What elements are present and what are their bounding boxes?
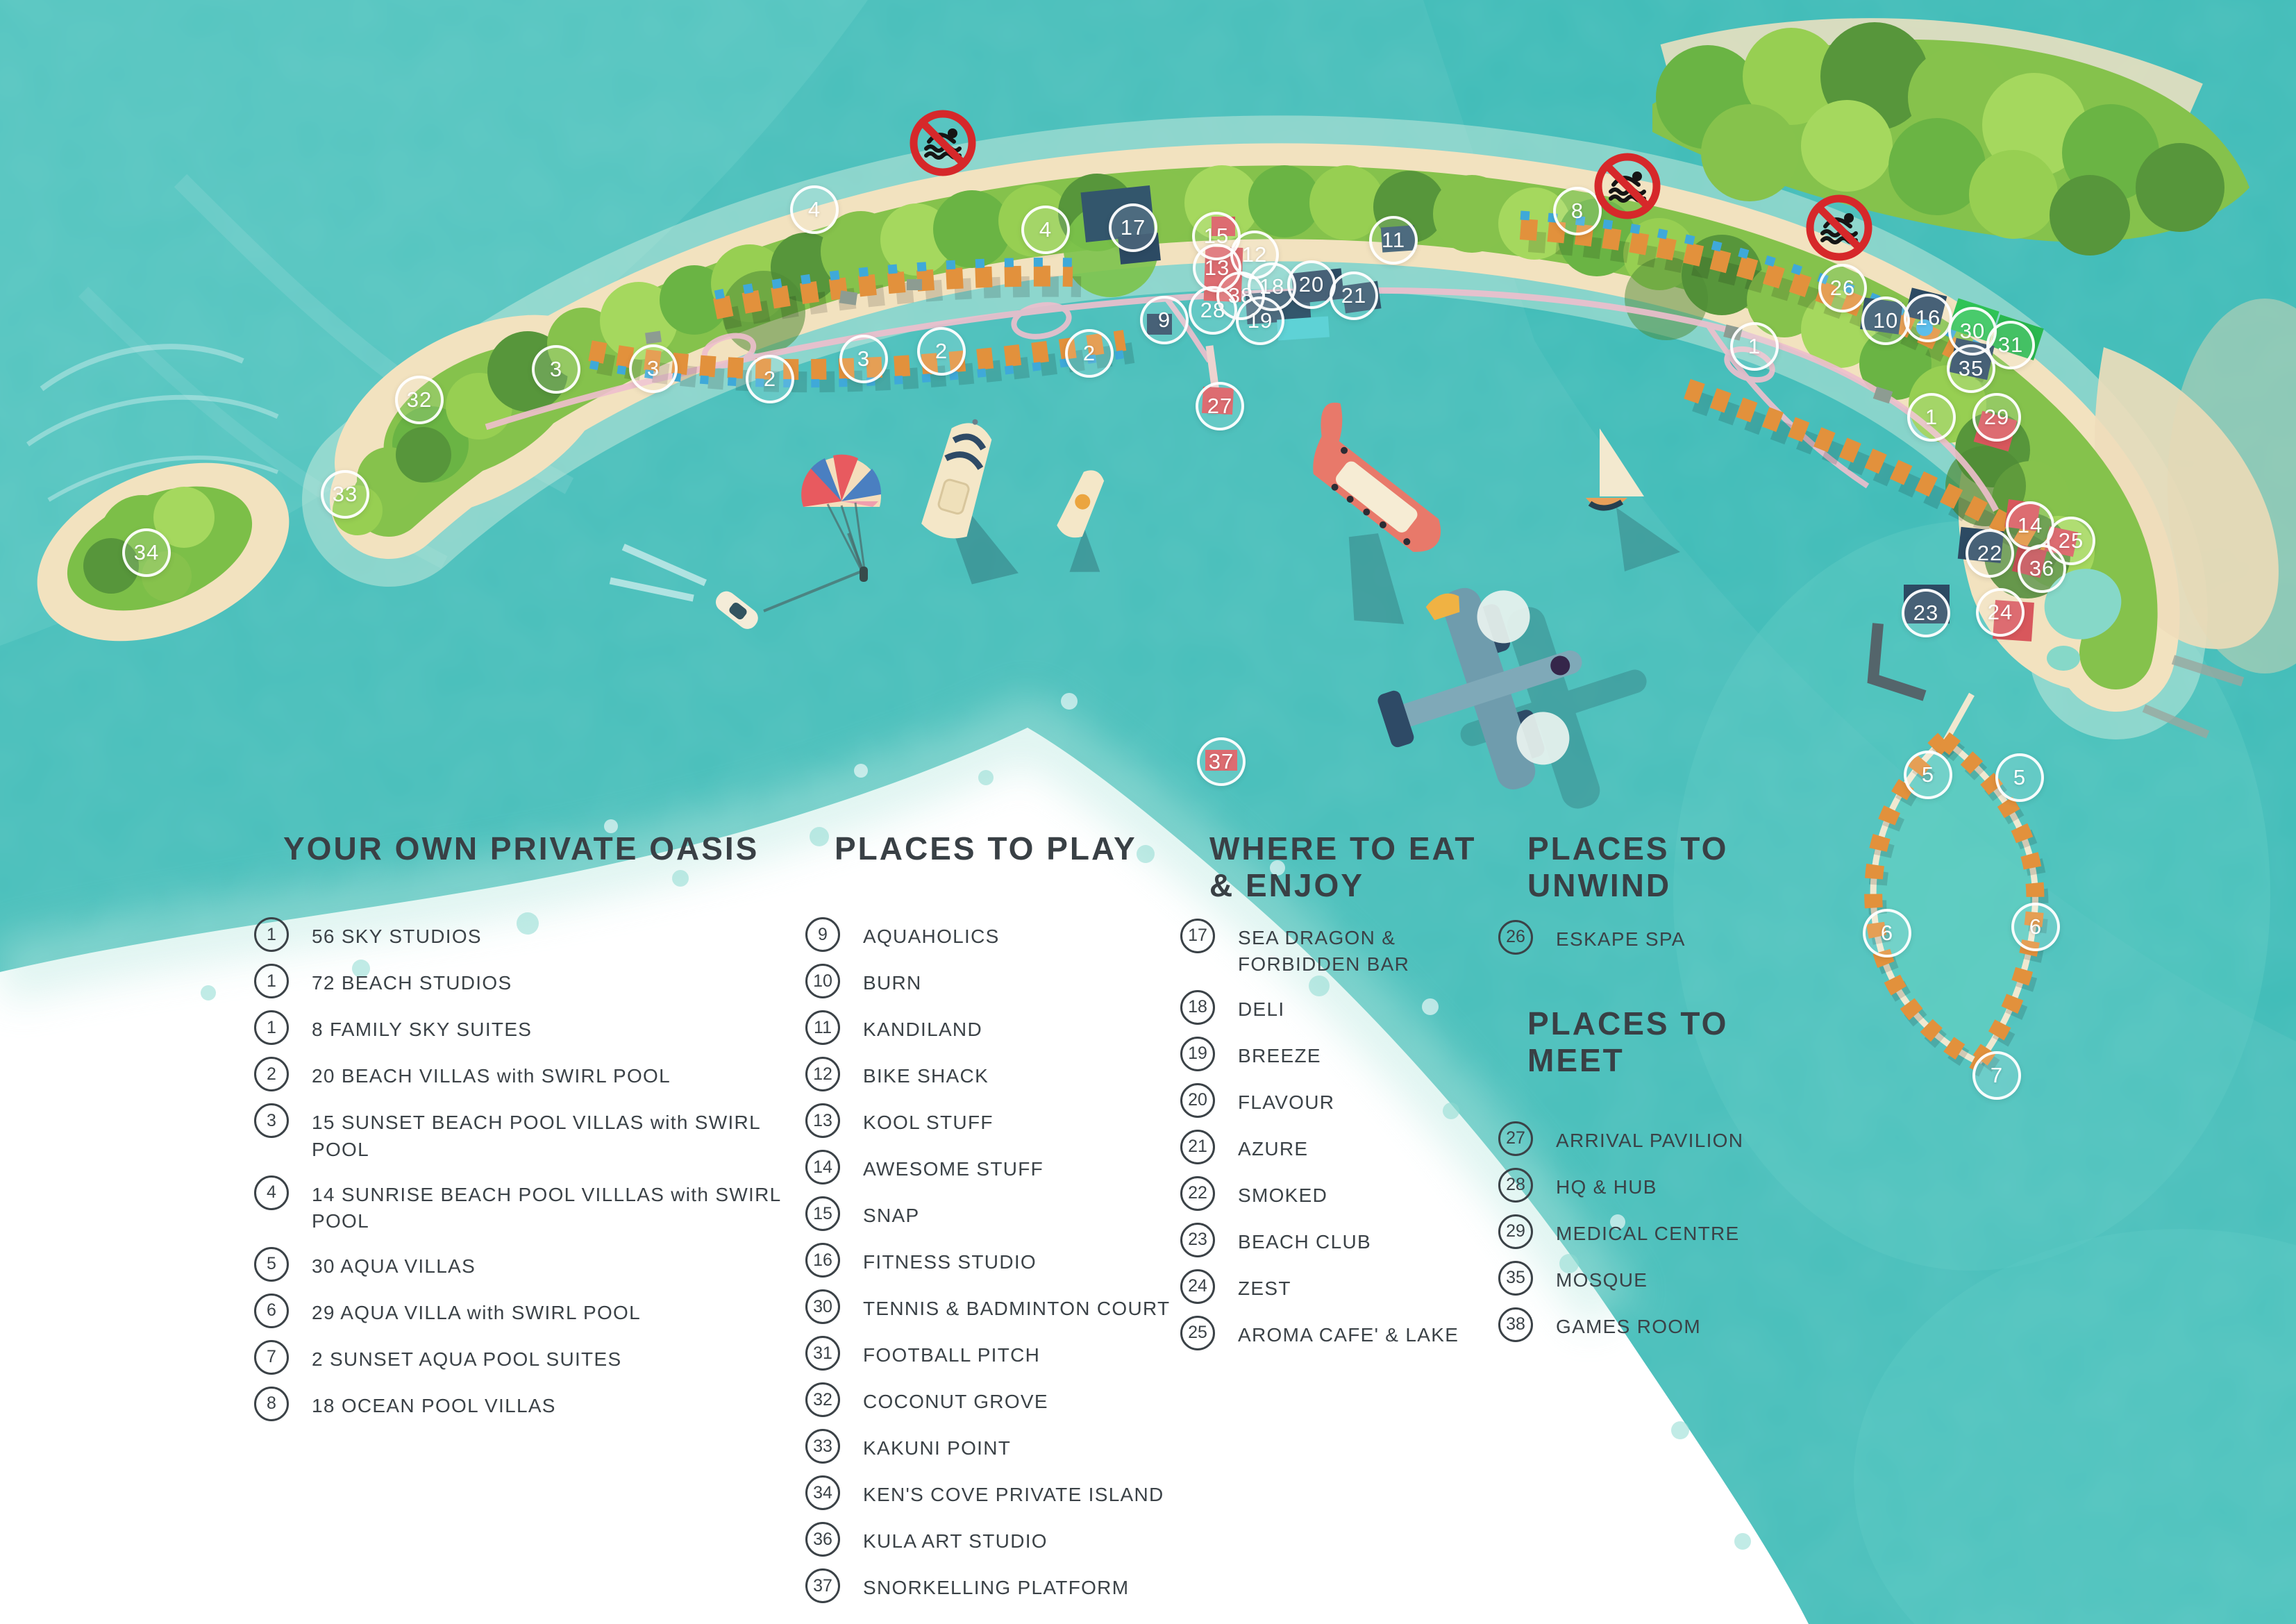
map-marker-2: 2 (917, 327, 966, 376)
legend-item-number: 37 (805, 1568, 840, 1603)
legend-item-label: SNORKELLING PLATFORM (863, 1568, 1129, 1602)
legend-item-label: KAKUNI POINT (863, 1429, 1011, 1462)
legend-item-number: 33 (805, 1429, 840, 1464)
legend-item: 12 BIKE SHACK (805, 1057, 1194, 1091)
legend-item-label: KOOL STUFF (863, 1103, 994, 1137)
legend-items: 1 56 SKY STUDIOS 1 72 BEACH STUDIOS 1 8 … (254, 917, 796, 1421)
map-marker-10: 10 (1861, 296, 1910, 345)
legend-item-number: 30 (805, 1289, 840, 1324)
map-marker-17: 17 (1109, 203, 1157, 252)
legend-item-number: 14 (805, 1150, 840, 1184)
legend-section-places-to-play: PLACES TO PLAY 9 AQUAHOLICS 10 BURN 11 K… (805, 830, 1194, 1615)
legend-item-number: 21 (1180, 1130, 1215, 1164)
legend-item-label: 20 BEACH VILLAS with SWIRL POOL (312, 1057, 671, 1090)
map-marker-37: 37 (1197, 737, 1246, 786)
legend-item-number: 17 (1180, 919, 1215, 953)
legend-item: 24 ZEST (1180, 1269, 1507, 1304)
legend-item-number: 36 (805, 1522, 840, 1557)
legend-items: 26 ESKAPE SPA (1498, 920, 1818, 955)
legend-item-number: 23 (1180, 1223, 1215, 1257)
legend-item: 5 30 AQUA VILLAS (254, 1247, 796, 1282)
legend-item-label: FLAVOUR (1238, 1083, 1334, 1116)
legend-item-label: KULA ART STUDIO (863, 1522, 1048, 1555)
map-marker-20: 20 (1287, 260, 1336, 309)
legend-item-label: COCONUT GROVE (863, 1382, 1048, 1416)
legend-title: PLACES TO UNWIND (1527, 830, 1818, 905)
legend-item: 16 FITNESS STUDIO (805, 1243, 1194, 1278)
legend-item-number: 24 (1180, 1269, 1215, 1304)
legend-item: 4 14 SUNRISE BEACH POOL VILLLAS with SWI… (254, 1175, 796, 1235)
legend-item-number: 6 (254, 1294, 289, 1328)
legend-item: 17 SEA DRAGON & FORBIDDEN BAR (1180, 919, 1507, 978)
legend-item: 33 KAKUNI POINT (805, 1429, 1194, 1464)
legend-item-label: AZURE (1238, 1130, 1308, 1163)
legend-item: 6 29 AQUA VILLA with SWIRL POOL (254, 1294, 796, 1328)
legend-item: 1 8 FAMILY SKY SUITES (254, 1010, 796, 1045)
legend-item: 9 AQUAHOLICS (805, 917, 1194, 952)
legend-item-label: ESKAPE SPA (1556, 920, 1686, 953)
no-swimming-icon (907, 107, 979, 179)
legend-item-label: ARRIVAL PAVILION (1556, 1121, 1743, 1155)
map-marker-27: 27 (1196, 382, 1244, 430)
legend-item: 11 KANDILAND (805, 1010, 1194, 1045)
map-marker-3: 3 (839, 335, 888, 383)
legend-item-label: SNAP (863, 1196, 919, 1230)
map-marker-2: 2 (746, 355, 794, 403)
legend-item-label: BEACH CLUB (1238, 1223, 1371, 1256)
legend-item-label: 14 SUNRISE BEACH POOL VILLLAS with SWIRL… (312, 1175, 796, 1235)
legend-item-number: 20 (1180, 1083, 1215, 1118)
legend-item: 29 MEDICAL CENTRE (1498, 1214, 1818, 1249)
legend-item-number: 1 (254, 964, 289, 998)
map-marker-2: 2 (1065, 329, 1114, 378)
legend-item-label: DELI (1238, 990, 1284, 1023)
map-marker-7: 7 (1972, 1051, 2021, 1100)
map-marker-28: 28 (1189, 286, 1237, 335)
legend-item-label: MOSQUE (1556, 1261, 1648, 1294)
legend-item: 28 HQ & HUB (1498, 1168, 1818, 1203)
legend-item: 35 MOSQUE (1498, 1261, 1818, 1296)
legend-item-number: 29 (1498, 1214, 1533, 1249)
map-marker-22: 22 (1966, 529, 2014, 578)
legend-item-number: 25 (1180, 1316, 1215, 1350)
legend-item-label: 8 FAMILY SKY SUITES (312, 1010, 532, 1044)
legend-title: WHERE TO EAT & ENJOY (1209, 830, 1507, 905)
legend-item: 30 TENNIS & BADMINTON COURT (805, 1289, 1194, 1324)
legend-item-number: 2 (254, 1057, 289, 1091)
legend-item-number: 15 (805, 1196, 840, 1231)
map-marker-6: 6 (2011, 903, 2060, 951)
legend-item-number: 22 (1180, 1176, 1215, 1211)
map-marker-4: 4 (1021, 206, 1070, 254)
legend-item-number: 28 (1498, 1168, 1533, 1203)
map-marker-35: 35 (1947, 344, 1995, 393)
legend-section-private-oasis: YOUR OWN PRIVATE OASIS 1 56 SKY STUDIOS … (254, 830, 796, 1433)
legend-item-label: SEA DRAGON & FORBIDDEN BAR (1238, 919, 1409, 978)
legend-item-label: HQ & HUB (1556, 1168, 1657, 1201)
legend-item-number: 10 (805, 964, 840, 998)
legend-section-where-to-eat: WHERE TO EAT & ENJOY 17 SEA DRAGON & FOR… (1180, 830, 1507, 1362)
legend-item-number: 5 (254, 1247, 289, 1282)
legend-item-number: 35 (1498, 1261, 1533, 1296)
map-marker-24: 24 (1976, 588, 2025, 637)
map-marker-19: 19 (1236, 296, 1284, 345)
legend-item-number: 27 (1498, 1121, 1533, 1156)
legend-item-label: 15 SUNSET BEACH POOL VILLAS with SWIRL P… (312, 1103, 796, 1163)
map-marker-9: 9 (1140, 296, 1189, 344)
map-marker-11: 11 (1369, 216, 1418, 265)
legend-item-label: SMOKED (1238, 1176, 1327, 1209)
legend-item-number: 1 (254, 917, 289, 952)
legend-item: 31 FOOTBALL PITCH (805, 1336, 1194, 1371)
legend-item: 34 KEN'S COVE PRIVATE ISLAND (805, 1475, 1194, 1510)
legend-item-label: AWESOME STUFF (863, 1150, 1044, 1183)
legend-item: 23 BEACH CLUB (1180, 1223, 1507, 1257)
map-marker-23: 23 (1902, 589, 1950, 637)
legend-item: 18 DELI (1180, 990, 1507, 1025)
legend-item: 14 AWESOME STUFF (805, 1150, 1194, 1184)
map-marker-3: 3 (629, 344, 678, 393)
legend-item-label: AQUAHOLICS (863, 917, 1000, 951)
legend-item: 3 15 SUNSET BEACH POOL VILLAS with SWIRL… (254, 1103, 796, 1163)
legend-item-label: AROMA CAFE' & LAKE (1238, 1316, 1459, 1349)
legend-item-label: 72 BEACH STUDIOS (312, 964, 512, 997)
legend-items: 27 ARRIVAL PAVILION 28 HQ & HUB 29 MEDIC… (1498, 1121, 1818, 1342)
legend-item-number: 19 (1180, 1037, 1215, 1071)
map-marker-4: 4 (790, 185, 839, 234)
legend-item: 10 BURN (805, 964, 1194, 998)
legend-item: 32 COCONUT GROVE (805, 1382, 1194, 1417)
legend-item-label: ZEST (1238, 1269, 1291, 1303)
legend-item: 36 KULA ART STUDIO (805, 1522, 1194, 1557)
legend-item-label: 56 SKY STUDIOS (312, 917, 482, 951)
map-marker-5: 5 (1904, 751, 1952, 799)
legend-item-number: 32 (805, 1382, 840, 1417)
map-marker-16: 16 (1904, 294, 1952, 342)
legend-item: 1 72 BEACH STUDIOS (254, 964, 796, 998)
map-marker-21: 21 (1330, 271, 1378, 320)
legend-item: 7 2 SUNSET AQUA POOL SUITES (254, 1340, 796, 1375)
legend-item-number: 9 (805, 917, 840, 952)
legend-item: 20 FLAVOUR (1180, 1083, 1507, 1118)
legend-item: 26 ESKAPE SPA (1498, 920, 1818, 955)
legend-item: 1 56 SKY STUDIOS (254, 917, 796, 952)
no-swimming-icon (1591, 150, 1664, 222)
no-swimming-icon (1803, 192, 1875, 264)
legend-item-number: 34 (805, 1475, 840, 1510)
legend-item-label: 2 SUNSET AQUA POOL SUITES (312, 1340, 621, 1373)
map-marker-26: 26 (1818, 264, 1867, 312)
legend-item-number: 3 (254, 1103, 289, 1138)
legend-item-label: MEDICAL CENTRE (1556, 1214, 1740, 1248)
legend-item: 15 SNAP (805, 1196, 1194, 1231)
legend-item-label: 30 AQUA VILLAS (312, 1247, 476, 1280)
legend-item-number: 1 (254, 1010, 289, 1045)
map-marker-32: 32 (395, 376, 444, 424)
legend-item: 21 AZURE (1180, 1130, 1507, 1164)
map-marker-34: 34 (122, 528, 171, 577)
legend-items: 17 SEA DRAGON & FORBIDDEN BAR 18 DELI 19… (1180, 919, 1507, 1350)
legend-item: 2 20 BEACH VILLAS with SWIRL POOL (254, 1057, 796, 1091)
legend-item: 19 BREEZE (1180, 1037, 1507, 1071)
legend-item-label: GAMES ROOM (1556, 1307, 1701, 1341)
legend-item-label: KEN'S COVE PRIVATE ISLAND (863, 1475, 1164, 1509)
map-marker-3: 3 (532, 345, 580, 394)
legend-item-label: BREEZE (1238, 1037, 1321, 1070)
map-marker-36: 36 (2018, 544, 2066, 593)
legend-item-number: 4 (254, 1175, 289, 1210)
legend-item: 22 SMOKED (1180, 1176, 1507, 1211)
legend-item-number: 31 (805, 1336, 840, 1371)
map-marker-1: 1 (1730, 322, 1779, 371)
legend-section-places-to-meet: PLACES TO MEET 27 ARRIVAL PAVILION 28 HQ… (1498, 1005, 1818, 1354)
map-marker-5: 5 (1995, 753, 2044, 802)
legend-item-number: 8 (254, 1387, 289, 1421)
legend-item-number: 38 (1498, 1307, 1533, 1342)
legend-title: PLACES TO MEET (1527, 1005, 1818, 1080)
legend-item-label: BURN (863, 964, 922, 997)
legend-item-label: FITNESS STUDIO (863, 1243, 1037, 1276)
legend-item-number: 13 (805, 1103, 840, 1138)
legend-item-number: 11 (805, 1010, 840, 1045)
legend-item-label: FOOTBALL PITCH (863, 1336, 1040, 1369)
legend-item-label: KANDILAND (863, 1010, 982, 1044)
legend-item: 37 SNORKELLING PLATFORM (805, 1568, 1194, 1603)
legend-items: 9 AQUAHOLICS 10 BURN 11 KANDILAND 12 BIK… (805, 917, 1194, 1603)
map-marker-29: 29 (1972, 393, 2021, 442)
legend-title: YOUR OWN PRIVATE OASIS (283, 830, 796, 867)
legend-item-number: 26 (1498, 920, 1533, 955)
legend-item-label: TENNIS & BADMINTON COURT (863, 1289, 1170, 1323)
legend-item-number: 7 (254, 1340, 289, 1375)
legend-item: 25 AROMA CAFE' & LAKE (1180, 1316, 1507, 1350)
legend-section-places-to-unwind: PLACES TO UNWIND 26 ESKAPE SPA (1498, 830, 1818, 966)
legend-item: 27 ARRIVAL PAVILION (1498, 1121, 1818, 1156)
legend-item: 38 GAMES ROOM (1498, 1307, 1818, 1342)
map-marker-6: 6 (1863, 909, 1911, 957)
legend-item: 8 18 OCEAN POOL VILLAS (254, 1387, 796, 1421)
legend-item: 13 KOOL STUFF (805, 1103, 1194, 1138)
map-marker-33: 33 (321, 470, 369, 519)
map-marker-1: 1 (1907, 393, 1956, 442)
legend-item-number: 12 (805, 1057, 840, 1091)
legend-item-number: 16 (805, 1243, 840, 1278)
resort-island-map: 34 33 32 3 3 2 4 3 2 4 2 17 15 12 13 18 … (0, 0, 2296, 1624)
legend-title: PLACES TO PLAY (835, 830, 1194, 867)
legend-item-label: 18 OCEAN POOL VILLAS (312, 1387, 556, 1420)
legend-item-label: BIKE SHACK (863, 1057, 989, 1090)
legend-item-label: 29 AQUA VILLA with SWIRL POOL (312, 1294, 641, 1327)
legend-item-number: 18 (1180, 990, 1215, 1025)
